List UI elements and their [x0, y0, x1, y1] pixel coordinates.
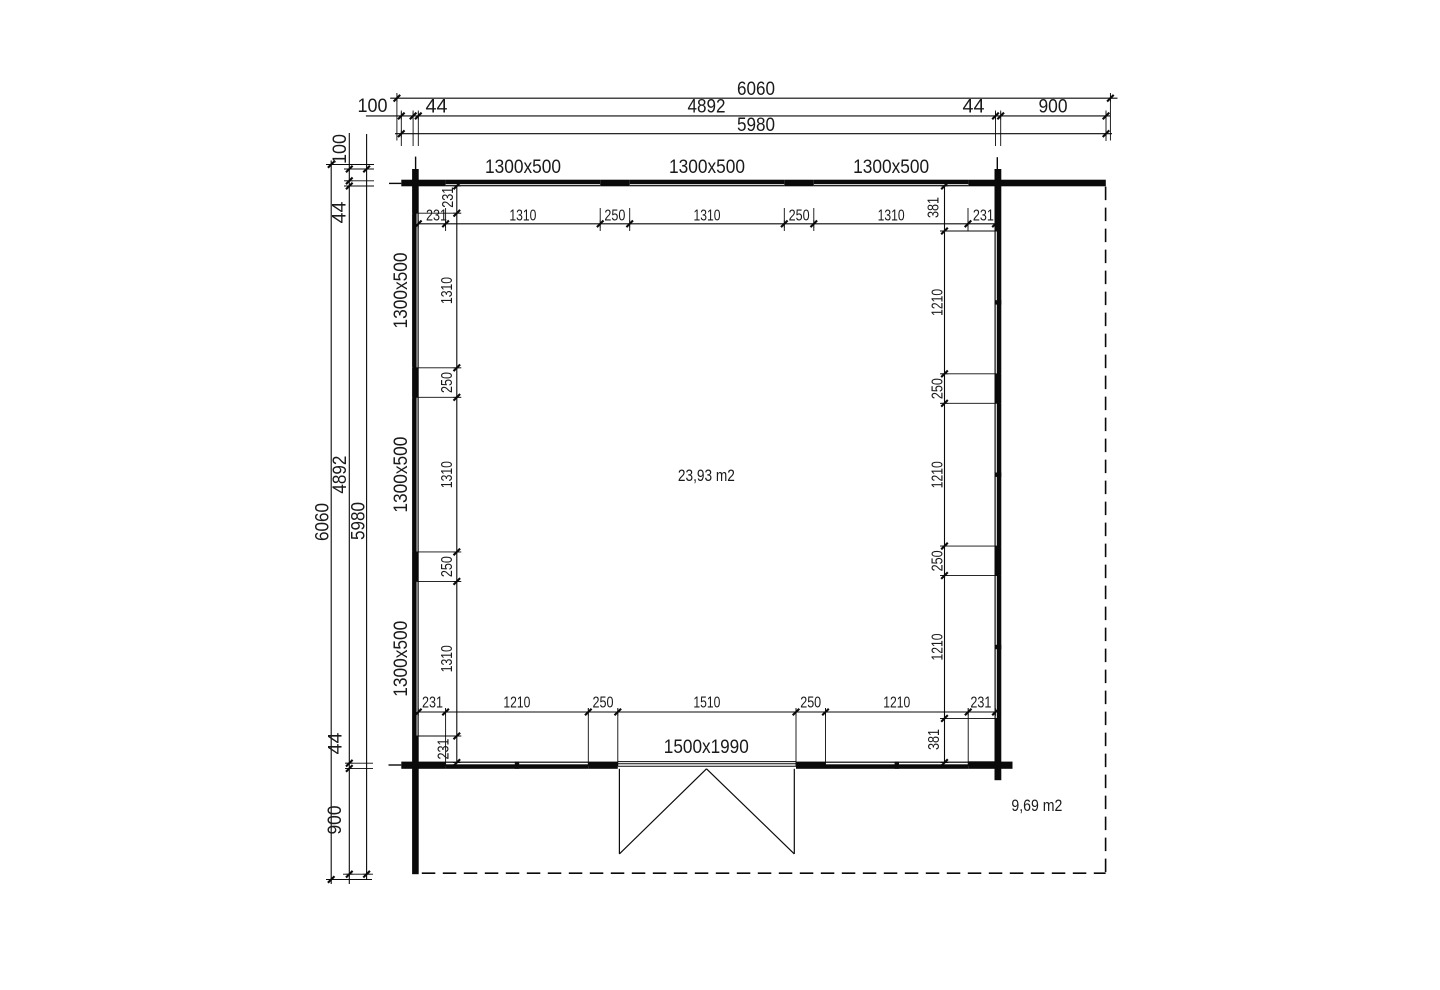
svg-text:1300x500: 1300x500: [391, 253, 412, 329]
svg-text:250: 250: [929, 378, 946, 399]
svg-text:231: 231: [970, 695, 991, 712]
svg-text:100: 100: [358, 96, 388, 117]
svg-text:1300x500: 1300x500: [669, 157, 745, 178]
svg-text:1310: 1310: [509, 208, 536, 225]
svg-text:1300x500: 1300x500: [391, 621, 412, 697]
svg-text:250: 250: [593, 695, 614, 712]
svg-text:231: 231: [422, 695, 443, 712]
svg-text:9,69 m2: 9,69 m2: [1011, 796, 1062, 815]
svg-text:5980: 5980: [737, 115, 775, 136]
svg-text:1310: 1310: [439, 461, 456, 488]
svg-text:1300x500: 1300x500: [853, 157, 929, 178]
svg-text:900: 900: [325, 806, 346, 835]
svg-text:6060: 6060: [312, 503, 333, 541]
svg-text:44: 44: [426, 96, 448, 117]
svg-text:44: 44: [963, 97, 985, 118]
svg-text:900: 900: [1039, 97, 1068, 118]
svg-text:381: 381: [925, 197, 942, 218]
svg-text:1300x500: 1300x500: [485, 157, 561, 178]
svg-text:44: 44: [330, 201, 351, 223]
svg-text:1210: 1210: [929, 461, 946, 488]
svg-text:231: 231: [436, 738, 453, 759]
svg-text:23,93 m2: 23,93 m2: [678, 466, 735, 485]
svg-text:381: 381: [926, 729, 943, 750]
svg-text:5980: 5980: [348, 502, 369, 540]
svg-text:231: 231: [973, 208, 994, 225]
svg-text:231: 231: [440, 187, 457, 208]
svg-text:1310: 1310: [878, 208, 905, 225]
svg-text:1210: 1210: [929, 633, 946, 660]
svg-text:4892: 4892: [330, 456, 351, 494]
svg-text:1210: 1210: [883, 695, 910, 712]
svg-text:250: 250: [439, 556, 456, 577]
svg-text:250: 250: [789, 208, 810, 225]
svg-text:6060: 6060: [737, 79, 775, 100]
svg-text:250: 250: [439, 372, 456, 393]
svg-text:250: 250: [800, 695, 821, 712]
svg-text:1210: 1210: [929, 289, 946, 316]
svg-text:4892: 4892: [688, 96, 726, 117]
svg-text:1300x500: 1300x500: [391, 437, 412, 513]
svg-text:1310: 1310: [439, 645, 456, 672]
svg-text:250: 250: [604, 208, 625, 225]
svg-text:1500x1990: 1500x1990: [664, 737, 749, 758]
svg-text:44: 44: [326, 732, 347, 754]
svg-text:231: 231: [426, 208, 447, 225]
svg-text:250: 250: [929, 550, 946, 571]
svg-text:1310: 1310: [694, 208, 721, 225]
svg-text:1510: 1510: [693, 695, 720, 712]
svg-text:1310: 1310: [439, 277, 456, 304]
svg-text:100: 100: [330, 134, 351, 164]
svg-text:1210: 1210: [503, 695, 530, 712]
